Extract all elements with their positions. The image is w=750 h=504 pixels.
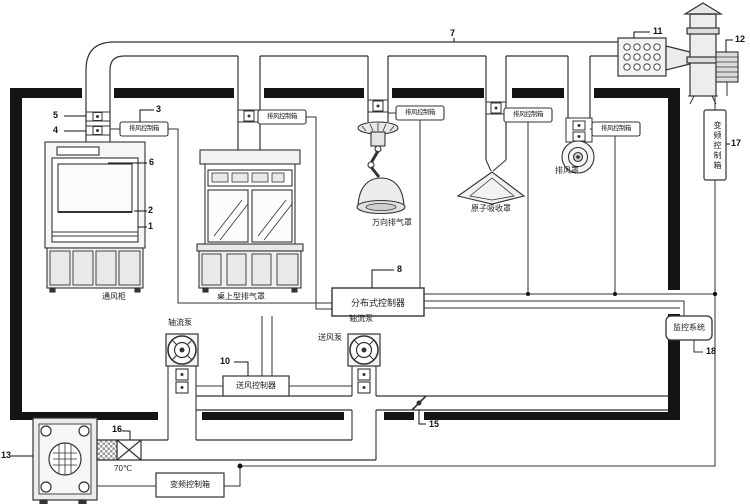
- ref-2: 2: [148, 206, 153, 215]
- fume-hood-cabinet: [45, 142, 145, 292]
- universal-hood-arm: [357, 122, 405, 214]
- air-filter: [97, 440, 117, 460]
- ref-17: 17: [731, 139, 741, 148]
- ref-18: 18: [706, 347, 716, 356]
- ref-12: 12: [735, 35, 745, 44]
- ref-1: 1: [148, 222, 153, 231]
- ref-10: 10: [220, 357, 230, 366]
- wire-junctions: [238, 292, 718, 469]
- distributed-controller-label: 分布式控制器: [334, 296, 422, 309]
- ref-15: 15: [429, 420, 439, 429]
- vfd-box-right-label: 变频控制箱: [707, 116, 723, 176]
- supply-fan-label: 送风泵: [316, 333, 344, 342]
- muffler: [618, 38, 666, 76]
- exhaust-ctrl-box-1-label: 排风控制箱: [121, 126, 167, 133]
- ref-3: 3: [156, 105, 161, 114]
- supply-fan-right: [348, 334, 380, 366]
- exhaust-ctrl-box-3-label: 排风控制箱: [397, 110, 443, 117]
- patent-ventilation-schematic: 通风柜 桌上型排气罩 万向排气罩 原子吸收罩 排风罩 轴流泵 轴流泵 送风泵 7…: [0, 0, 750, 504]
- exhaust-ductwork: [86, 42, 618, 160]
- roof-fan-motor: [716, 52, 738, 96]
- axial-fan-left-label: 轴流泵: [166, 318, 194, 327]
- supply-ductwork: [97, 396, 668, 460]
- vfd-box-bottom-label: 变频控制箱: [158, 480, 222, 489]
- ref-8: 8: [397, 265, 402, 274]
- monitoring-system-label: 监控系统: [668, 323, 710, 332]
- exhaust-ctrl-box-4-label: 排风控制箱: [505, 112, 551, 119]
- atomic-absorption-hood: [458, 160, 524, 204]
- supply-duct-damper: [412, 396, 426, 410]
- ref-11: 11: [653, 27, 663, 36]
- universal-hood-label: 万向排气罩: [370, 218, 414, 227]
- atomic-hood-label: 原子吸收罩: [469, 204, 513, 213]
- ref-6: 6: [149, 158, 154, 167]
- ref-7: 7: [450, 29, 455, 38]
- ref-5: 5: [53, 111, 58, 120]
- exhaust-ctrl-box-5-label: 排风控制箱: [593, 126, 639, 133]
- outdoor-air-unit: [33, 418, 97, 504]
- desktop-hood-label: 桌上型排气罩: [215, 292, 267, 301]
- round-hood-label: 排风罩: [552, 166, 582, 175]
- fire-damper: [117, 440, 141, 460]
- desktop-hood-cabinet: [197, 150, 303, 292]
- axial-fan-right-label: 轴流泵: [347, 314, 375, 323]
- supply-fan-left: [166, 334, 198, 366]
- fire-damper-temp: 70℃: [104, 464, 142, 473]
- fume-hood-label: 通风柜: [92, 292, 136, 301]
- ref-4: 4: [53, 126, 58, 135]
- supply-controller-label: 送风控制器: [226, 381, 286, 390]
- ref-13: 13: [1, 451, 11, 460]
- ref-16: 16: [112, 425, 122, 434]
- exhaust-ctrl-box-2-label: 排风控制箱: [259, 114, 305, 121]
